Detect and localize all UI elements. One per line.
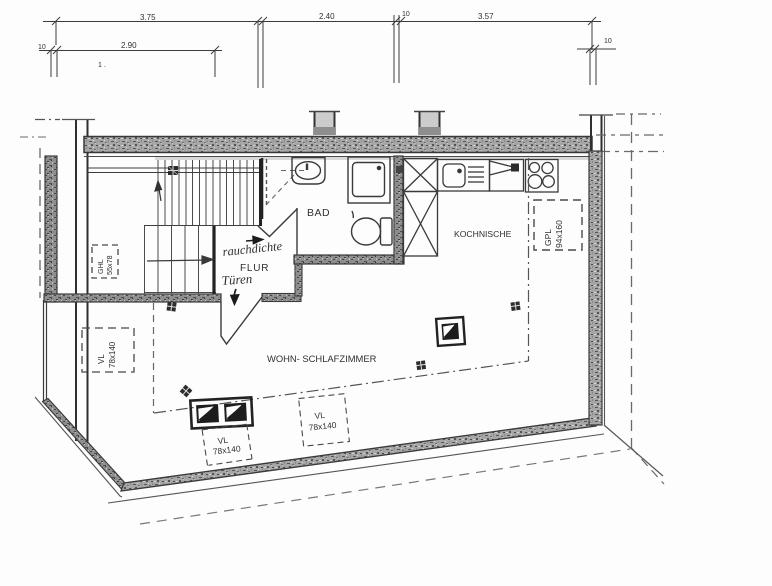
svg-text:10: 10 [38, 44, 46, 51]
svg-text:WOHN- SCHLAFZIMMER: WOHN- SCHLAFZIMMER [267, 353, 377, 364]
svg-text:10: 10 [604, 38, 612, 45]
svg-text:Türen: Türen [221, 271, 253, 288]
svg-text:2.40: 2.40 [319, 12, 335, 21]
svg-text:3.57: 3.57 [478, 12, 494, 21]
svg-text:GPL: GPL [543, 229, 553, 246]
svg-text:VL: VL [314, 410, 326, 421]
svg-text:94x160: 94x160 [554, 220, 564, 248]
svg-text:VL: VL [97, 354, 106, 364]
svg-text:BAD: BAD [307, 207, 330, 219]
svg-text:1 .: 1 . [98, 62, 106, 69]
svg-text:2.90: 2.90 [121, 41, 137, 50]
svg-text:KOCHNISCHE: KOCHNISCHE [454, 229, 512, 239]
svg-text:GHL: GHL [96, 259, 105, 274]
svg-text:55x78: 55x78 [105, 255, 114, 275]
svg-text:10: 10 [402, 11, 410, 18]
svg-text:3.75: 3.75 [140, 13, 156, 22]
svg-text:78x140: 78x140 [108, 341, 117, 368]
